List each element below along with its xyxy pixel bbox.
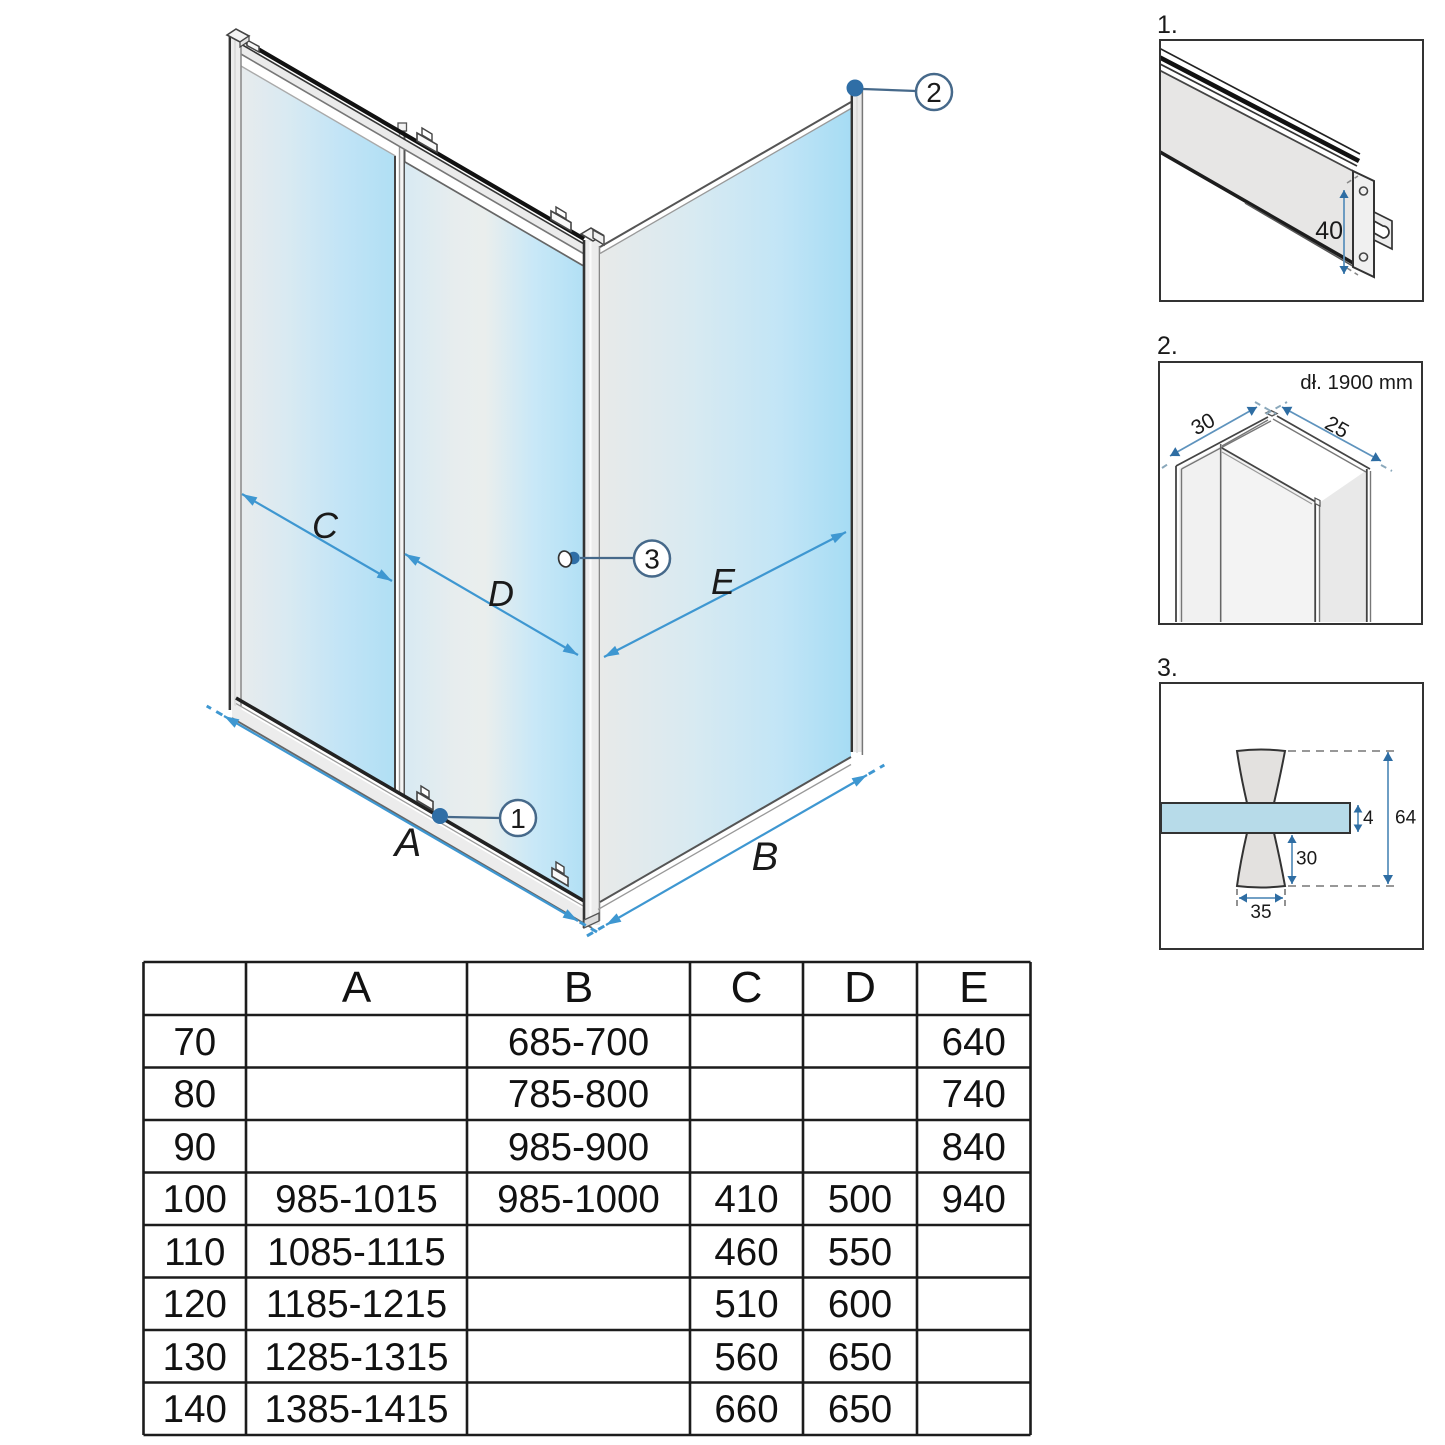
svg-text:1.: 1. [1157, 11, 1178, 39]
svg-text:600: 600 [828, 1283, 892, 1326]
svg-text:2: 2 [926, 77, 942, 108]
svg-text:E: E [711, 561, 736, 602]
svg-text:940: 940 [942, 1178, 1006, 1221]
svg-text:A: A [342, 963, 372, 1012]
svg-text:35: 35 [1250, 902, 1271, 923]
svg-text:4: 4 [1363, 808, 1374, 829]
svg-text:650: 650 [828, 1388, 892, 1431]
svg-text:C: C [731, 963, 763, 1012]
svg-text:B: B [752, 835, 779, 879]
svg-text:1285-1315: 1285-1315 [264, 1336, 448, 1379]
svg-text:3.: 3. [1157, 654, 1178, 682]
svg-text:120: 120 [163, 1283, 227, 1326]
svg-text:650: 650 [828, 1336, 892, 1379]
svg-text:1: 1 [510, 803, 526, 834]
svg-text:985-1000: 985-1000 [497, 1178, 660, 1221]
svg-text:B: B [564, 963, 593, 1012]
svg-text:1185-1215: 1185-1215 [266, 1283, 447, 1326]
svg-text:985-1015: 985-1015 [275, 1178, 438, 1221]
svg-text:640: 640 [942, 1021, 1006, 1064]
svg-text:510: 510 [714, 1283, 778, 1326]
svg-text:410: 410 [714, 1178, 778, 1221]
svg-text:140: 140 [163, 1388, 227, 1431]
svg-text:550: 550 [828, 1231, 892, 1274]
svg-text:2.: 2. [1157, 332, 1178, 360]
svg-text:70: 70 [173, 1021, 216, 1064]
svg-text:D: D [488, 573, 514, 614]
svg-text:D: D [844, 963, 876, 1012]
svg-text:80: 80 [173, 1073, 216, 1116]
svg-text:90: 90 [173, 1126, 216, 1169]
svg-text:785-800: 785-800 [508, 1073, 649, 1116]
svg-text:660: 660 [714, 1388, 778, 1431]
svg-text:1085-1115: 1085-1115 [267, 1231, 445, 1274]
svg-text:100: 100 [163, 1178, 227, 1221]
svg-text:dł. 1900 mm: dł. 1900 mm [1300, 371, 1413, 394]
svg-text:A: A [393, 821, 422, 865]
svg-text:985-900: 985-900 [508, 1126, 649, 1169]
svg-text:460: 460 [714, 1231, 778, 1274]
svg-text:840: 840 [942, 1126, 1006, 1169]
svg-text:30: 30 [1296, 849, 1317, 870]
svg-text:500: 500 [828, 1178, 892, 1221]
svg-text:560: 560 [714, 1336, 778, 1379]
svg-text:C: C [312, 505, 339, 546]
svg-text:130: 130 [163, 1336, 227, 1379]
svg-text:740: 740 [942, 1073, 1006, 1116]
svg-text:40: 40 [1315, 217, 1343, 245]
svg-text:64: 64 [1395, 808, 1417, 829]
svg-text:685-700: 685-700 [508, 1021, 649, 1064]
svg-text:1385-1415: 1385-1415 [264, 1388, 448, 1431]
svg-text:110: 110 [164, 1231, 225, 1274]
svg-text:E: E [959, 963, 988, 1012]
svg-text:3: 3 [644, 544, 660, 575]
